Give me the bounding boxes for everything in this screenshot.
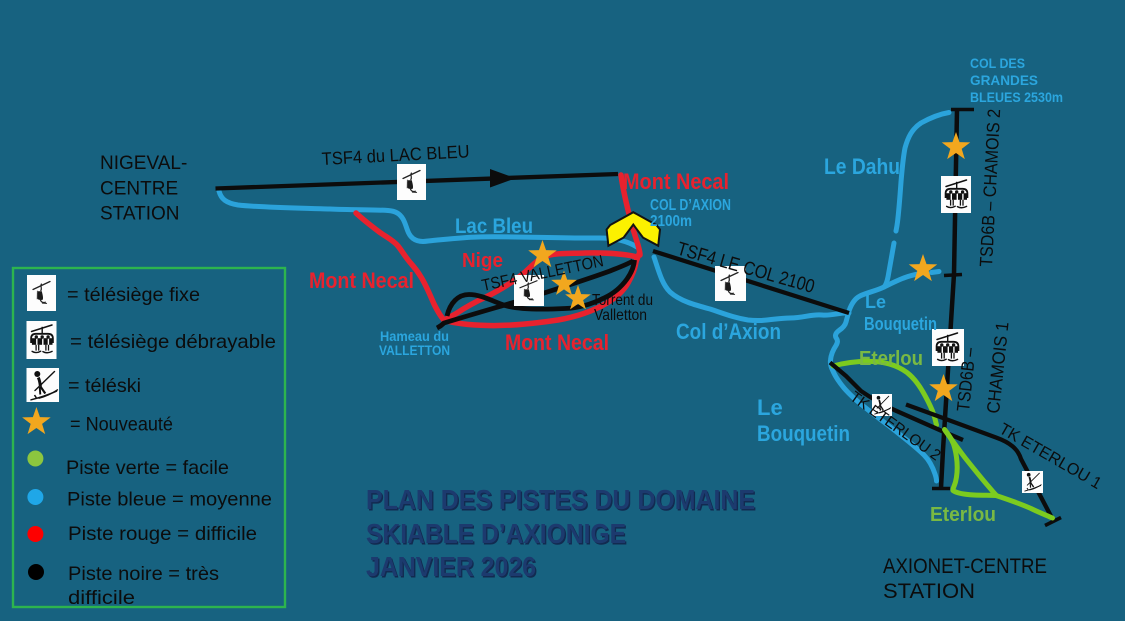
svg-text:CENTRE: CENTRE xyxy=(100,178,178,199)
svg-text:SKIABLE D’AXIONIGE: SKIABLE D’AXIONIGE xyxy=(366,518,626,549)
svg-text:Valletton: Valletton xyxy=(594,307,647,324)
svg-text:JANVIER 2026: JANVIER 2026 xyxy=(366,551,536,582)
svg-text:= téléski: = téléski xyxy=(68,375,141,397)
svg-text:AXIONET-CENTRE: AXIONET-CENTRE xyxy=(883,555,1047,578)
svg-text:Nige: Nige xyxy=(462,250,503,272)
svg-text:Mont Necal: Mont Necal xyxy=(309,268,414,293)
svg-text:Le: Le xyxy=(865,292,886,312)
svg-text:Le: Le xyxy=(757,395,783,420)
svg-text:VALLETTON: VALLETTON xyxy=(379,343,450,358)
svg-text:Mont Necal: Mont Necal xyxy=(623,169,729,194)
svg-text:STATION: STATION xyxy=(100,204,180,225)
svg-text:COL DES: COL DES xyxy=(970,55,1025,71)
svg-text:Piste rouge = difficile: Piste rouge = difficile xyxy=(68,523,257,545)
svg-text:Col d’Axion: Col d’Axion xyxy=(676,319,781,344)
svg-text:2100m: 2100m xyxy=(650,213,692,230)
svg-text:Bouquetin: Bouquetin xyxy=(757,421,850,446)
svg-text:Lac Bleu: Lac Bleu xyxy=(455,215,533,238)
svg-text:Eterlou: Eterlou xyxy=(930,504,996,526)
svg-text:COL D’AXION: COL D’AXION xyxy=(650,197,731,214)
svg-text:= Nouveauté: = Nouveauté xyxy=(70,414,173,436)
svg-text:GRANDES: GRANDES xyxy=(970,72,1038,88)
svg-text:Hameau du: Hameau du xyxy=(380,329,449,344)
svg-text:difficile: difficile xyxy=(68,587,135,609)
svg-text:STATION: STATION xyxy=(883,580,975,603)
svg-text:Mont Necal: Mont Necal xyxy=(505,330,609,355)
svg-text:= télésiège fixe: = télésiège fixe xyxy=(67,284,200,306)
svg-text:PLAN DES PISTES DU DOMAINE: PLAN DES PISTES DU DOMAINE xyxy=(366,484,755,515)
svg-text:= télésiège débrayable: = télésiège débrayable xyxy=(70,331,276,353)
svg-text:Piste bleue = moyenne: Piste bleue = moyenne xyxy=(67,489,272,511)
svg-text:Piste verte = facile: Piste verte = facile xyxy=(66,457,229,479)
svg-text:BLEUES 2530m: BLEUES 2530m xyxy=(970,89,1063,105)
svg-text:Le Dahu: Le Dahu xyxy=(824,154,900,179)
svg-text:Piste noire = très: Piste noire = très xyxy=(68,563,219,585)
svg-text:NIGEVAL-: NIGEVAL- xyxy=(100,153,187,174)
svg-text:Eterlou: Eterlou xyxy=(859,348,923,370)
svg-text:Bouquetin: Bouquetin xyxy=(864,314,937,334)
